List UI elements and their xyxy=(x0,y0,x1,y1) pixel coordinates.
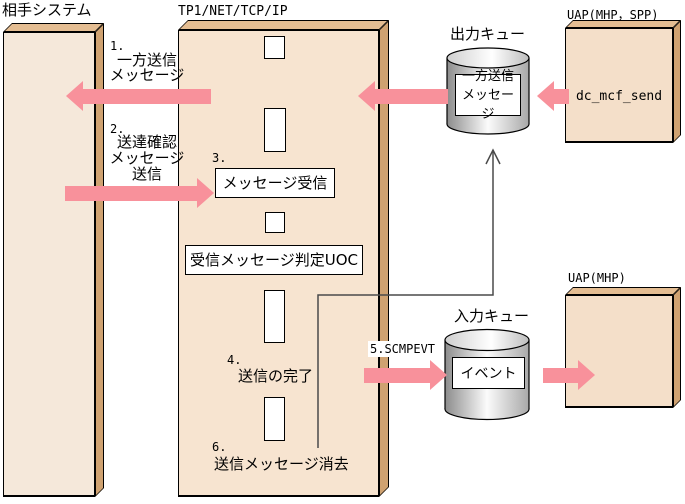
arrow-head-icon xyxy=(537,81,554,111)
step2-text: 送達確認 メッセージ 送信 xyxy=(101,134,193,182)
partner-box-top-face xyxy=(3,23,104,32)
message-slot-5 xyxy=(264,397,285,441)
step2-text-line2: メッセージ xyxy=(101,150,193,166)
uap-mhp-box-top-face xyxy=(565,287,681,295)
arrow-body xyxy=(83,89,211,104)
uap-spp-box-side-face xyxy=(673,20,681,143)
step3-number: 3. xyxy=(212,151,226,165)
arrow-head-icon xyxy=(66,81,83,111)
output-content-line2: メッセージ xyxy=(456,86,520,124)
step6-number: 6. xyxy=(212,440,226,454)
input-queue-content-box: イベント xyxy=(452,357,525,389)
output-content-line1: 一方送信 xyxy=(456,67,520,86)
arrow-body xyxy=(554,89,569,104)
tp1-label: TP1/NET/TCP/IP xyxy=(178,4,288,19)
step2-text-line3: 送信 xyxy=(101,166,193,182)
scmpevt-label: 5.SCMPEVT xyxy=(368,341,437,357)
arrow-head-icon xyxy=(197,178,214,208)
output-queue-content-box: 一方送信 メッセージ xyxy=(455,74,521,116)
message-slot-4 xyxy=(264,290,285,343)
judge-uoc-box: 受信メッセージ判定UOC xyxy=(185,245,363,275)
output-queue-content: 一方送信 メッセージ xyxy=(456,67,520,124)
step1-text-line2: メッセージ xyxy=(101,68,193,83)
message-slot-1 xyxy=(264,36,285,59)
step6-label: 送信メッセージ消去 xyxy=(214,456,349,472)
step2-text-line1: 送達確認 xyxy=(101,134,193,150)
arrow-head-icon xyxy=(430,360,447,390)
step4-label: 送信の完了 xyxy=(238,368,313,384)
uap-spp-box-front-face xyxy=(565,28,673,143)
input-queue-content: イベント xyxy=(461,363,517,383)
arrow-body xyxy=(364,368,430,383)
step1-text: 一方送信 メッセージ xyxy=(101,53,193,83)
uap-mhp-box-side-face xyxy=(673,287,681,408)
arrow-body xyxy=(375,89,448,104)
arrow-head-icon xyxy=(358,81,375,111)
uap-mhp-label: UAP(MHP) xyxy=(568,271,626,285)
partner-system-label: 相手システム xyxy=(2,2,92,18)
judge-uoc-label: 受信メッセージ判定UOC xyxy=(190,252,358,268)
uap-spp-label: UAP(MHP，SPP) xyxy=(567,6,658,23)
step4-number: 4. xyxy=(227,353,241,367)
arrow-body xyxy=(65,186,197,201)
diagram-canvas: 相手システム TP1/NET/TCP/IP UAP(MHP，SPP) 出力キュー… xyxy=(0,0,685,504)
message-receive-box: メッセージ受信 xyxy=(215,168,335,198)
input-queue-label: 入力キュー xyxy=(454,308,529,324)
message-slot-2 xyxy=(264,108,286,152)
arrow-head-icon xyxy=(578,360,595,390)
dc-mcf-send-label: dc_mcf_send xyxy=(565,89,673,104)
arrow-body xyxy=(543,368,578,383)
message-slot-3 xyxy=(265,212,285,233)
tp1-box-top-face xyxy=(178,20,389,30)
message-receive-label: メッセージ受信 xyxy=(223,175,328,191)
output-queue-label: 出力キュー xyxy=(450,26,525,42)
uap-mhp-box-front-face xyxy=(565,295,673,408)
